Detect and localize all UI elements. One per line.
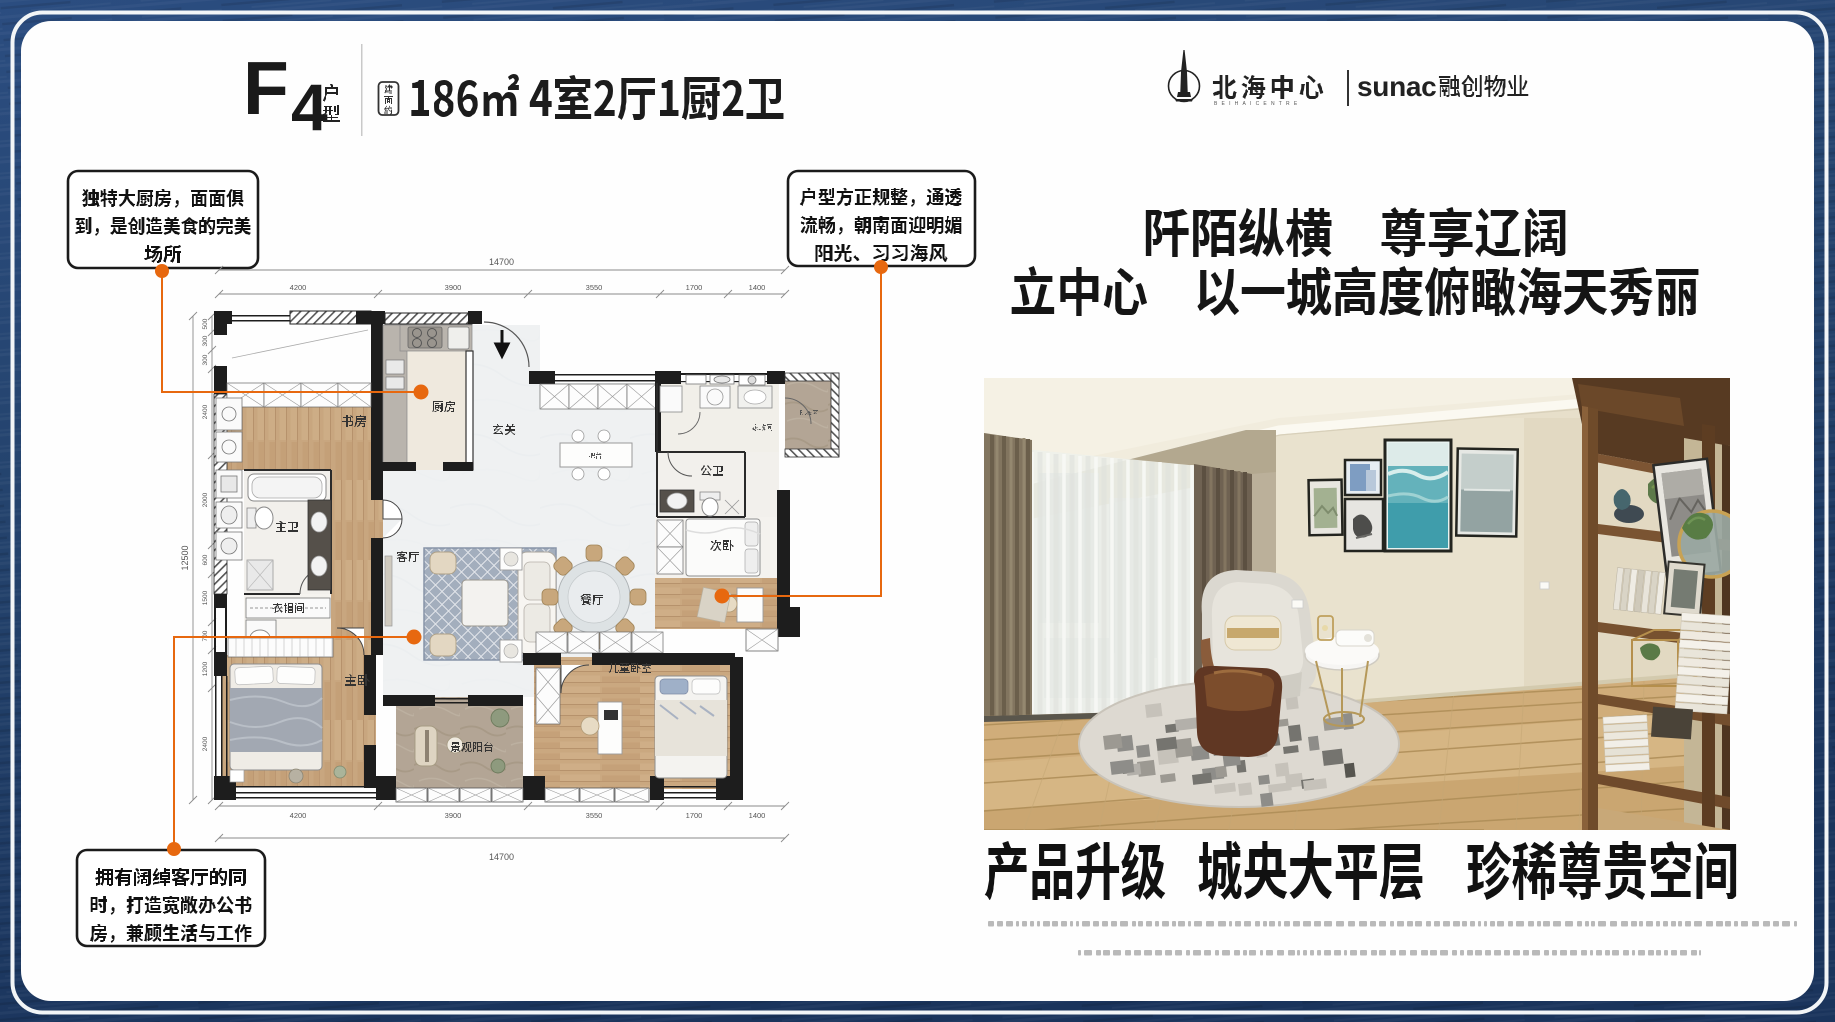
svg-text:1400: 1400 [749,283,766,292]
svg-text:1200: 1200 [202,661,209,676]
svg-text:1400: 1400 [749,811,766,820]
svg-text:4200: 4200 [290,811,307,820]
svg-text:14700: 14700 [489,852,514,862]
svg-text:3900: 3900 [445,811,462,820]
svg-text:700: 700 [202,630,209,641]
svg-text:1700: 1700 [686,283,703,292]
svg-text:1500: 1500 [202,590,209,605]
svg-text:3550: 3550 [586,811,603,820]
svg-text:12500: 12500 [180,545,190,570]
svg-text:sunac: sunac [1357,71,1436,102]
svg-text:600: 600 [202,554,209,565]
svg-text:4: 4 [291,70,328,144]
svg-text:BEIHAICENTRE: BEIHAICENTRE [1214,101,1301,107]
svg-text:2400: 2400 [202,736,209,751]
svg-text:1700: 1700 [686,811,703,820]
svg-text:3550: 3550 [586,283,603,292]
svg-text:300: 300 [202,354,209,365]
svg-text:3900: 3900 [445,283,462,292]
svg-text:2000: 2000 [202,492,209,507]
svg-text:14700: 14700 [489,257,514,267]
svg-text:2400: 2400 [202,404,209,419]
svg-text:F: F [243,46,289,130]
svg-text:300: 300 [202,335,209,346]
svg-text:500: 500 [202,318,209,329]
svg-text:4200: 4200 [290,283,307,292]
